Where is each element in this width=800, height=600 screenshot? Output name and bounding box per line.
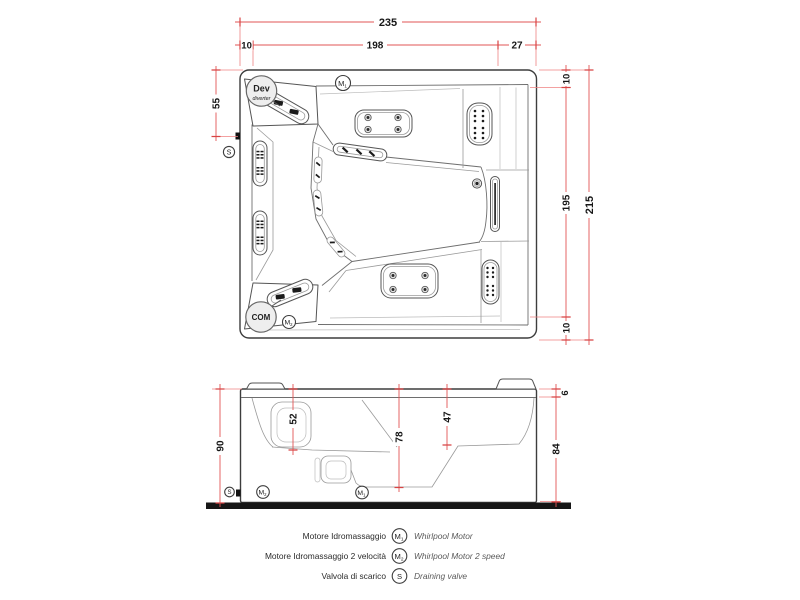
dim-27: 27 bbox=[509, 40, 525, 52]
dim-47: 47 bbox=[441, 408, 454, 426]
valve-badge-top: S bbox=[223, 146, 234, 157]
side-pillow-left-profile bbox=[247, 383, 286, 389]
valve-badge-side: S bbox=[225, 487, 235, 497]
svg-text:215: 215 bbox=[584, 196, 596, 214]
dim-195: 195 bbox=[561, 192, 573, 214]
diverter-badge: Dev diverter bbox=[246, 76, 276, 106]
svg-text:27: 27 bbox=[511, 41, 523, 52]
svg-text:195: 195 bbox=[561, 194, 572, 211]
legend: Motore Idromassaggio M1 Whirlpool Motor … bbox=[265, 529, 505, 584]
motor2-badge-top: M2 bbox=[283, 316, 296, 329]
motor1-badge-side: M1 bbox=[356, 486, 369, 499]
dim-52: 52 bbox=[287, 410, 300, 428]
legend-row-valve: Valvola di scarico S Draining valve bbox=[321, 569, 467, 584]
svg-text:10: 10 bbox=[561, 323, 572, 334]
svg-text:Motore Idromassaggio 2 velocit: Motore Idromassaggio 2 velocità bbox=[265, 551, 386, 561]
dim-10-left: 10 bbox=[241, 40, 253, 52]
technical-drawing: Dev diverter COM M1 M2 S bbox=[0, 0, 800, 600]
technical-drawing-page: Dev diverter COM M1 M2 S bbox=[0, 0, 800, 600]
side-pillow-right-bottom bbox=[482, 260, 499, 304]
legend-row-motor2: Motore Idromassaggio 2 velocità M2 Whirl… bbox=[265, 549, 505, 564]
lounger-wall-jet-1 bbox=[314, 157, 323, 183]
dim-84: 84 bbox=[550, 440, 563, 458]
dim-78: 78 bbox=[393, 428, 406, 446]
svg-text:47: 47 bbox=[443, 411, 454, 423]
dim-215: 215 bbox=[583, 192, 597, 218]
dim-198: 198 bbox=[363, 40, 387, 52]
svg-text:55: 55 bbox=[212, 98, 223, 110]
svg-text:10: 10 bbox=[561, 74, 572, 85]
com-badge: COM bbox=[246, 302, 276, 332]
svg-text:Whirlpool Motor: Whirlpool Motor bbox=[414, 531, 474, 541]
svg-text:Whirlpool Motor 2 speed: Whirlpool Motor 2 speed bbox=[414, 551, 505, 561]
svg-text:84: 84 bbox=[552, 443, 563, 455]
legend-row-motor1: Motore Idromassaggio M1 Whirlpool Motor bbox=[303, 529, 474, 544]
drain-outlet-tick-side bbox=[236, 490, 241, 497]
dim-55: 55 bbox=[210, 95, 223, 113]
drain-outlet-tick-top bbox=[236, 133, 241, 140]
svg-text:diverter: diverter bbox=[253, 96, 271, 102]
svg-text:COM: COM bbox=[252, 313, 271, 322]
svg-text:Dev: Dev bbox=[253, 84, 270, 94]
dim-6: 6 bbox=[560, 390, 571, 395]
jet-pillow-top bbox=[355, 110, 412, 137]
left-jet-strip-2 bbox=[253, 211, 267, 255]
svg-text:Motore Idromassaggio: Motore Idromassaggio bbox=[303, 531, 387, 541]
side-pillow-right-profile bbox=[496, 379, 536, 389]
dim-10-top-right: 10 bbox=[561, 72, 573, 86]
motor2-badge-side: M2 bbox=[257, 486, 270, 499]
svg-text:90: 90 bbox=[216, 440, 227, 452]
overflow-slot bbox=[491, 177, 500, 232]
drain-circle bbox=[472, 179, 481, 188]
dim-235: 235 bbox=[374, 16, 402, 29]
top-view: Dev diverter COM M1 M2 S bbox=[223, 70, 536, 338]
svg-text:S: S bbox=[397, 572, 402, 581]
svg-text:235: 235 bbox=[379, 17, 397, 29]
svg-text:78: 78 bbox=[395, 431, 406, 443]
motor1-badge-top: M1 bbox=[336, 76, 351, 91]
svg-text:Draining valve: Draining valve bbox=[414, 571, 467, 581]
svg-text:S: S bbox=[227, 490, 231, 496]
svg-text:10: 10 bbox=[241, 41, 252, 52]
side-view: S M2 M1 bbox=[225, 379, 537, 503]
svg-text:198: 198 bbox=[367, 41, 384, 52]
ground-line bbox=[206, 503, 571, 510]
side-pillow-right-top bbox=[467, 103, 492, 145]
svg-text:52: 52 bbox=[289, 413, 300, 425]
svg-text:Valvola di scarico: Valvola di scarico bbox=[321, 571, 386, 581]
dim-90: 90 bbox=[214, 437, 227, 455]
jet-pillow-bottom bbox=[381, 264, 438, 298]
svg-text:6: 6 bbox=[560, 390, 571, 395]
left-jet-strip-1 bbox=[253, 141, 267, 186]
svg-text:S: S bbox=[227, 150, 232, 157]
dim-10-bottom-right: 10 bbox=[561, 321, 573, 335]
